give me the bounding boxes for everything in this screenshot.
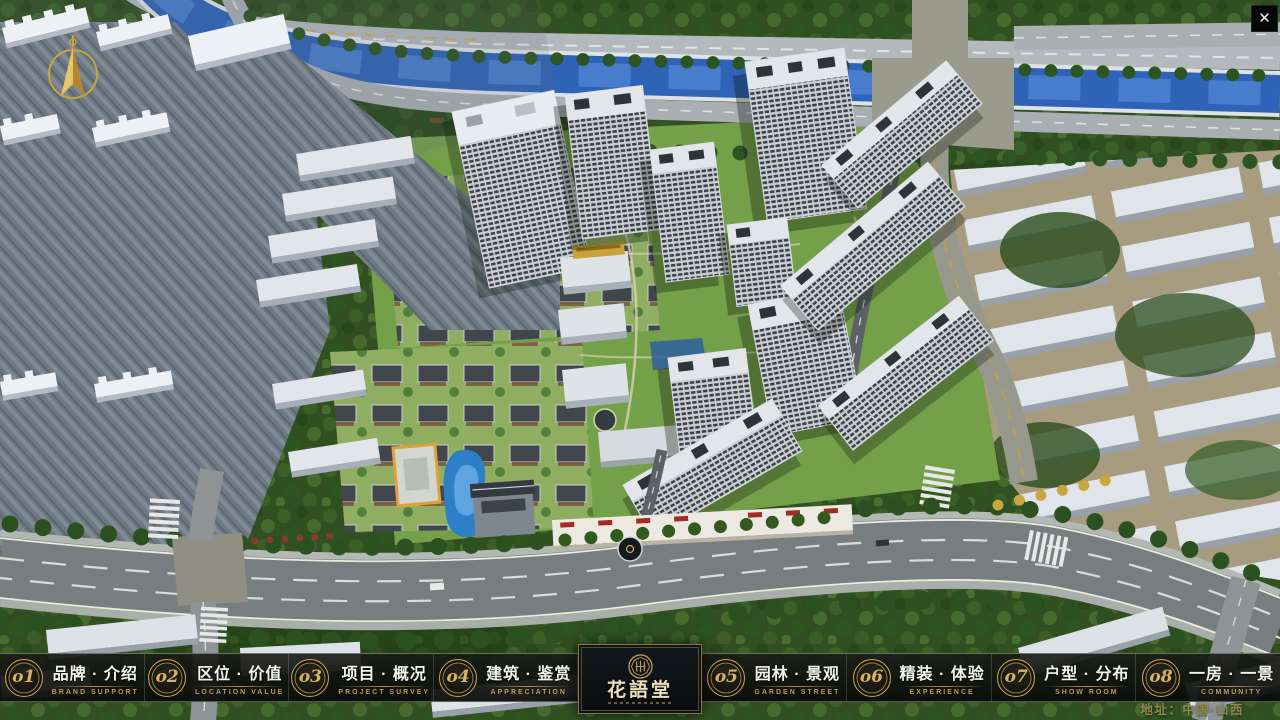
nav-sublabel: COMMUNITY [1201,689,1262,696]
nav-number: o3 [299,667,322,687]
nav-sublabel: SHOW ROOM [1055,689,1119,696]
nav-number: o5 [715,667,738,687]
project-name: 花語堂 [607,681,673,700]
nav-label: 户型 · 分布 [1044,660,1129,684]
compass-north-icon [42,32,104,108]
nav-sublabel: LOCATION VALUE [195,689,284,696]
nav-item-views[interactable]: o8 一房 · 一景 COMMUNITY [1136,654,1280,701]
nav-sublabel: GARDEN STREET [754,689,840,696]
seal-icon [628,654,653,679]
nav-item-interior[interactable]: o6 精装 · 体验 EXPERIENCE [847,654,992,701]
nav-item-brand[interactable]: o1 品牌 · 介绍 BRAND SUPPORT [0,654,145,701]
nav-label: 建筑 · 鉴赏 [486,660,571,684]
nav-number-badge: o2 [148,659,186,697]
nav-divider-line [486,686,571,687]
nav-sublabel: PROJECT SURVEY [338,689,430,696]
nav-number: o8 [1149,667,1172,687]
nav-texts: 项目 · 概况 PROJECT SURVEY [338,660,430,696]
nav-sublabel: APPRECIATION [491,689,567,696]
nav-number-badge: o4 [439,659,477,697]
nav-texts: 建筑 · 鉴赏 APPRECIATION [486,660,571,696]
nav-number-badge: o3 [291,659,329,697]
nav-item-project[interactable]: o3 项目 · 概况 PROJECT SURVEY [289,654,434,701]
nav-label: 一房 · 一景 [1189,660,1274,684]
nav-number: o6 [860,667,883,687]
nav-number: o2 [156,667,179,687]
nav-texts: 区位 · 价值 LOCATION VALUE [195,660,284,696]
nav-divider-line [338,686,430,687]
nav-label: 园林 · 景观 [755,660,840,684]
nav-item-floorplans[interactable]: o7 户型 · 分布 SHOW ROOM [992,654,1137,701]
nav-divider-line [1189,686,1274,687]
nav-number-badge: o6 [853,659,891,697]
logo-tagline-rule [608,702,672,704]
nav-item-location[interactable]: o2 区位 · 价值 LOCATION VALUE [145,654,290,701]
nav-sublabel: BRAND SUPPORT [52,689,139,696]
nav-divider-line [1044,686,1129,687]
nav-number-badge: o7 [997,659,1035,697]
nav-number: o7 [1005,667,1028,687]
nav-divider-line [754,686,840,687]
nav-divider-line [195,686,284,687]
nav-number-badge: o1 [5,659,43,697]
project-address: 地址：中国·山西 [1140,699,1244,718]
nav-sublabel: EXPERIENCE [910,689,975,696]
nav-item-landscape[interactable]: o5 园林 · 景观 GARDEN STREET [702,654,847,701]
project-logo-panel[interactable]: 花語堂 [578,644,702,714]
nav-label: 精装 · 体验 [900,660,985,684]
nav-label: 区位 · 价值 [197,660,282,684]
nav-texts: 精装 · 体验 EXPERIENCE [900,660,985,696]
nav-number: o4 [447,667,470,687]
nav-divider-line [52,686,139,687]
nav-label: 品牌 · 介绍 [53,660,138,684]
nav-item-architecture[interactable]: o4 建筑 · 鉴赏 APPRECIATION [434,654,579,701]
nav-texts: 品牌 · 介绍 BRAND SUPPORT [52,660,139,696]
presentation-stage: ✕ o1 品牌 · 介绍 BRAND SUPPORT o2 区位 · 价值 LO… [0,0,1280,720]
nav-number: o1 [12,667,35,687]
nav-number-badge: o5 [707,659,745,697]
nav-texts: 户型 · 分布 SHOW ROOM [1044,660,1129,696]
close-icon: ✕ [1258,11,1271,26]
nav-texts: 一房 · 一景 COMMUNITY [1189,660,1274,696]
nav-number-badge: o8 [1142,659,1180,697]
close-button[interactable]: ✕ [1251,5,1278,32]
nav-texts: 园林 · 景观 GARDEN STREET [754,660,840,696]
masterplan-aerial-map [0,0,1280,720]
nav-label: 项目 · 概况 [342,660,427,684]
nav-divider-line [900,686,985,687]
